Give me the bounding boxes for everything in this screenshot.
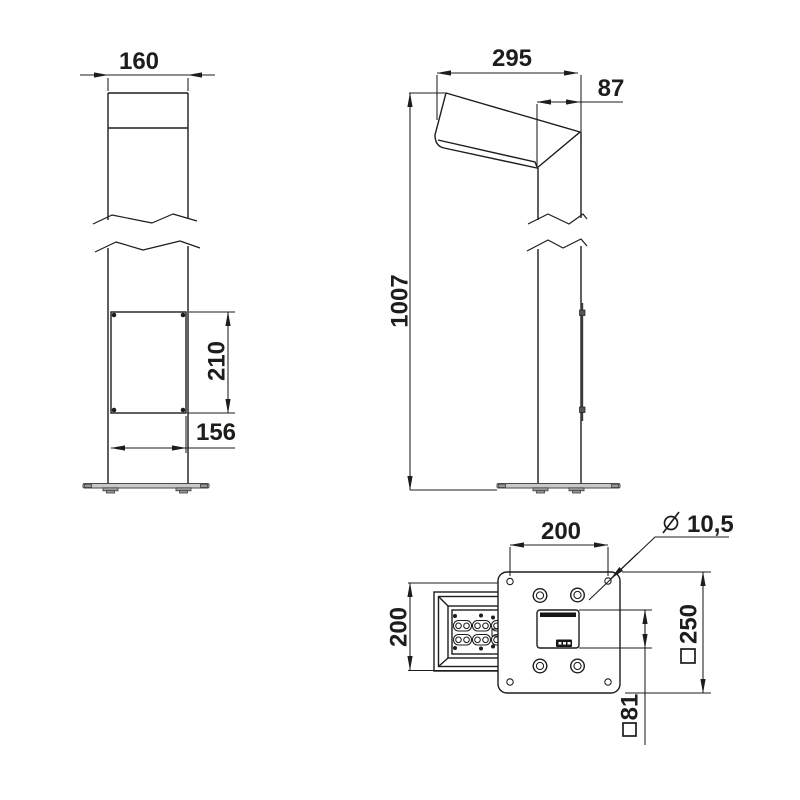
head-length-label: 295 xyxy=(492,45,532,72)
base-plate-side xyxy=(497,484,620,494)
square-icon xyxy=(623,723,636,736)
door-width-label: 156 xyxy=(196,419,236,446)
dimension-door-height: 210 xyxy=(188,312,235,413)
opening-size-label: 81 xyxy=(617,694,644,721)
dimension-pole-width: 160 xyxy=(80,48,215,91)
head-width-label: 200 xyxy=(386,607,413,647)
service-door xyxy=(111,312,186,413)
door-height-label: 210 xyxy=(204,341,231,381)
dimension-hole-spacing: 200 xyxy=(510,518,608,576)
front-view: 160 210 156 xyxy=(80,48,236,493)
break-lines-side xyxy=(527,214,587,251)
luminaire-head-side xyxy=(435,93,580,168)
bottom-view: 200 200 10,5 250 xyxy=(386,511,734,745)
base-plate-front xyxy=(83,484,209,494)
hole-diameter-label: 10,5 xyxy=(687,511,734,538)
square-icon xyxy=(681,649,695,663)
technical-drawing: 160 210 156 xyxy=(0,0,800,800)
pole-width-label: 160 xyxy=(119,48,159,75)
dimension-door-width: 156 xyxy=(111,416,236,453)
hole-spacing-label: 200 xyxy=(541,518,581,545)
pole-outline-side xyxy=(538,132,581,484)
side-view: 295 87 1007 xyxy=(387,45,625,493)
drawing-canvas: 160 210 156 xyxy=(0,0,800,800)
dimension-plate-size: 250 xyxy=(622,572,711,693)
pole-depth-label: 87 xyxy=(598,75,625,102)
plate-size-label: 250 xyxy=(676,604,703,644)
diameter-icon xyxy=(663,512,679,533)
break-lines-front xyxy=(93,214,200,252)
pole-outline-front xyxy=(108,93,188,484)
total-height-label: 1007 xyxy=(387,274,414,327)
base-plate-bottom xyxy=(498,572,620,693)
